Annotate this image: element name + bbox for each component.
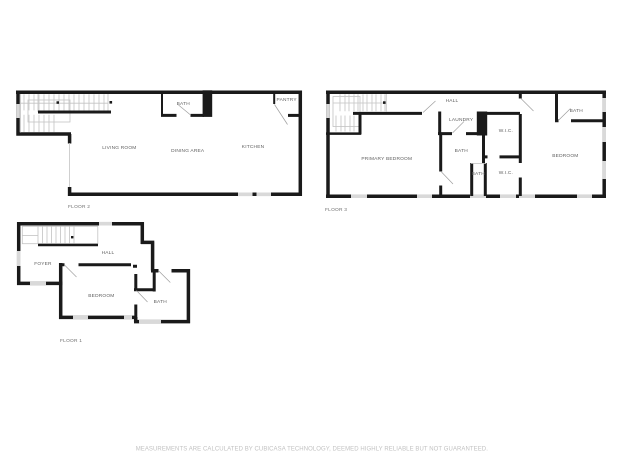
pantry-text: PANTRY (277, 98, 297, 103)
bath-floor1-text: BATH (153, 300, 166, 305)
living-room-text: LIVING ROOM (102, 146, 136, 151)
wic-upper-text: W.I.C. (499, 129, 513, 134)
bedroom-floor3-text: BEDROOM (552, 154, 578, 159)
floor2-caption-text: FLOOR 2 (68, 205, 90, 210)
kitchen-text: KITCHEN (242, 145, 264, 150)
bedroom-floor1-text: BEDROOM (88, 294, 114, 299)
disclaimer: MEASUREMENTS ARE CALCULATED BY CUBICASA … (0, 444, 623, 453)
hall-floor3-text: HALL (446, 99, 459, 104)
floor3-plan (326, 91, 606, 199)
stairs-icon (22, 226, 98, 244)
disclaimer-text: MEASUREMENTS ARE CALCULATED BY CUBICASA … (135, 445, 487, 452)
floorplan-canvas: LIVING ROOM DINING AREA KITCHEN BATH PAN… (0, 0, 623, 467)
bath-floor2-text: BATH (176, 102, 189, 107)
bath-small-floor3-text: BATH (471, 172, 484, 177)
hall-floor1-text: HALL (102, 251, 115, 256)
wic-lower-text: W.I.C. (499, 171, 513, 176)
floor2-plan (16, 90, 302, 196)
floorplan-walls-svg (0, 0, 623, 467)
floor1-caption-text: FLOOR 1 (60, 339, 82, 344)
foyer-text: FOYER (34, 262, 52, 267)
floor3-caption-text: FLOOR 3 (325, 208, 347, 213)
dining-area-text: DINING AREA (171, 149, 204, 154)
stairs-icon (20, 94, 112, 133)
primary-bedroom-text: PRIMARY BEDROOM (362, 157, 413, 162)
bath-top-floor3-text: BATH (569, 109, 582, 114)
floor1-plan (17, 222, 190, 323)
bath-floor3-text: BATH (454, 149, 467, 154)
laundry-text: LAUNDRY (449, 118, 473, 123)
